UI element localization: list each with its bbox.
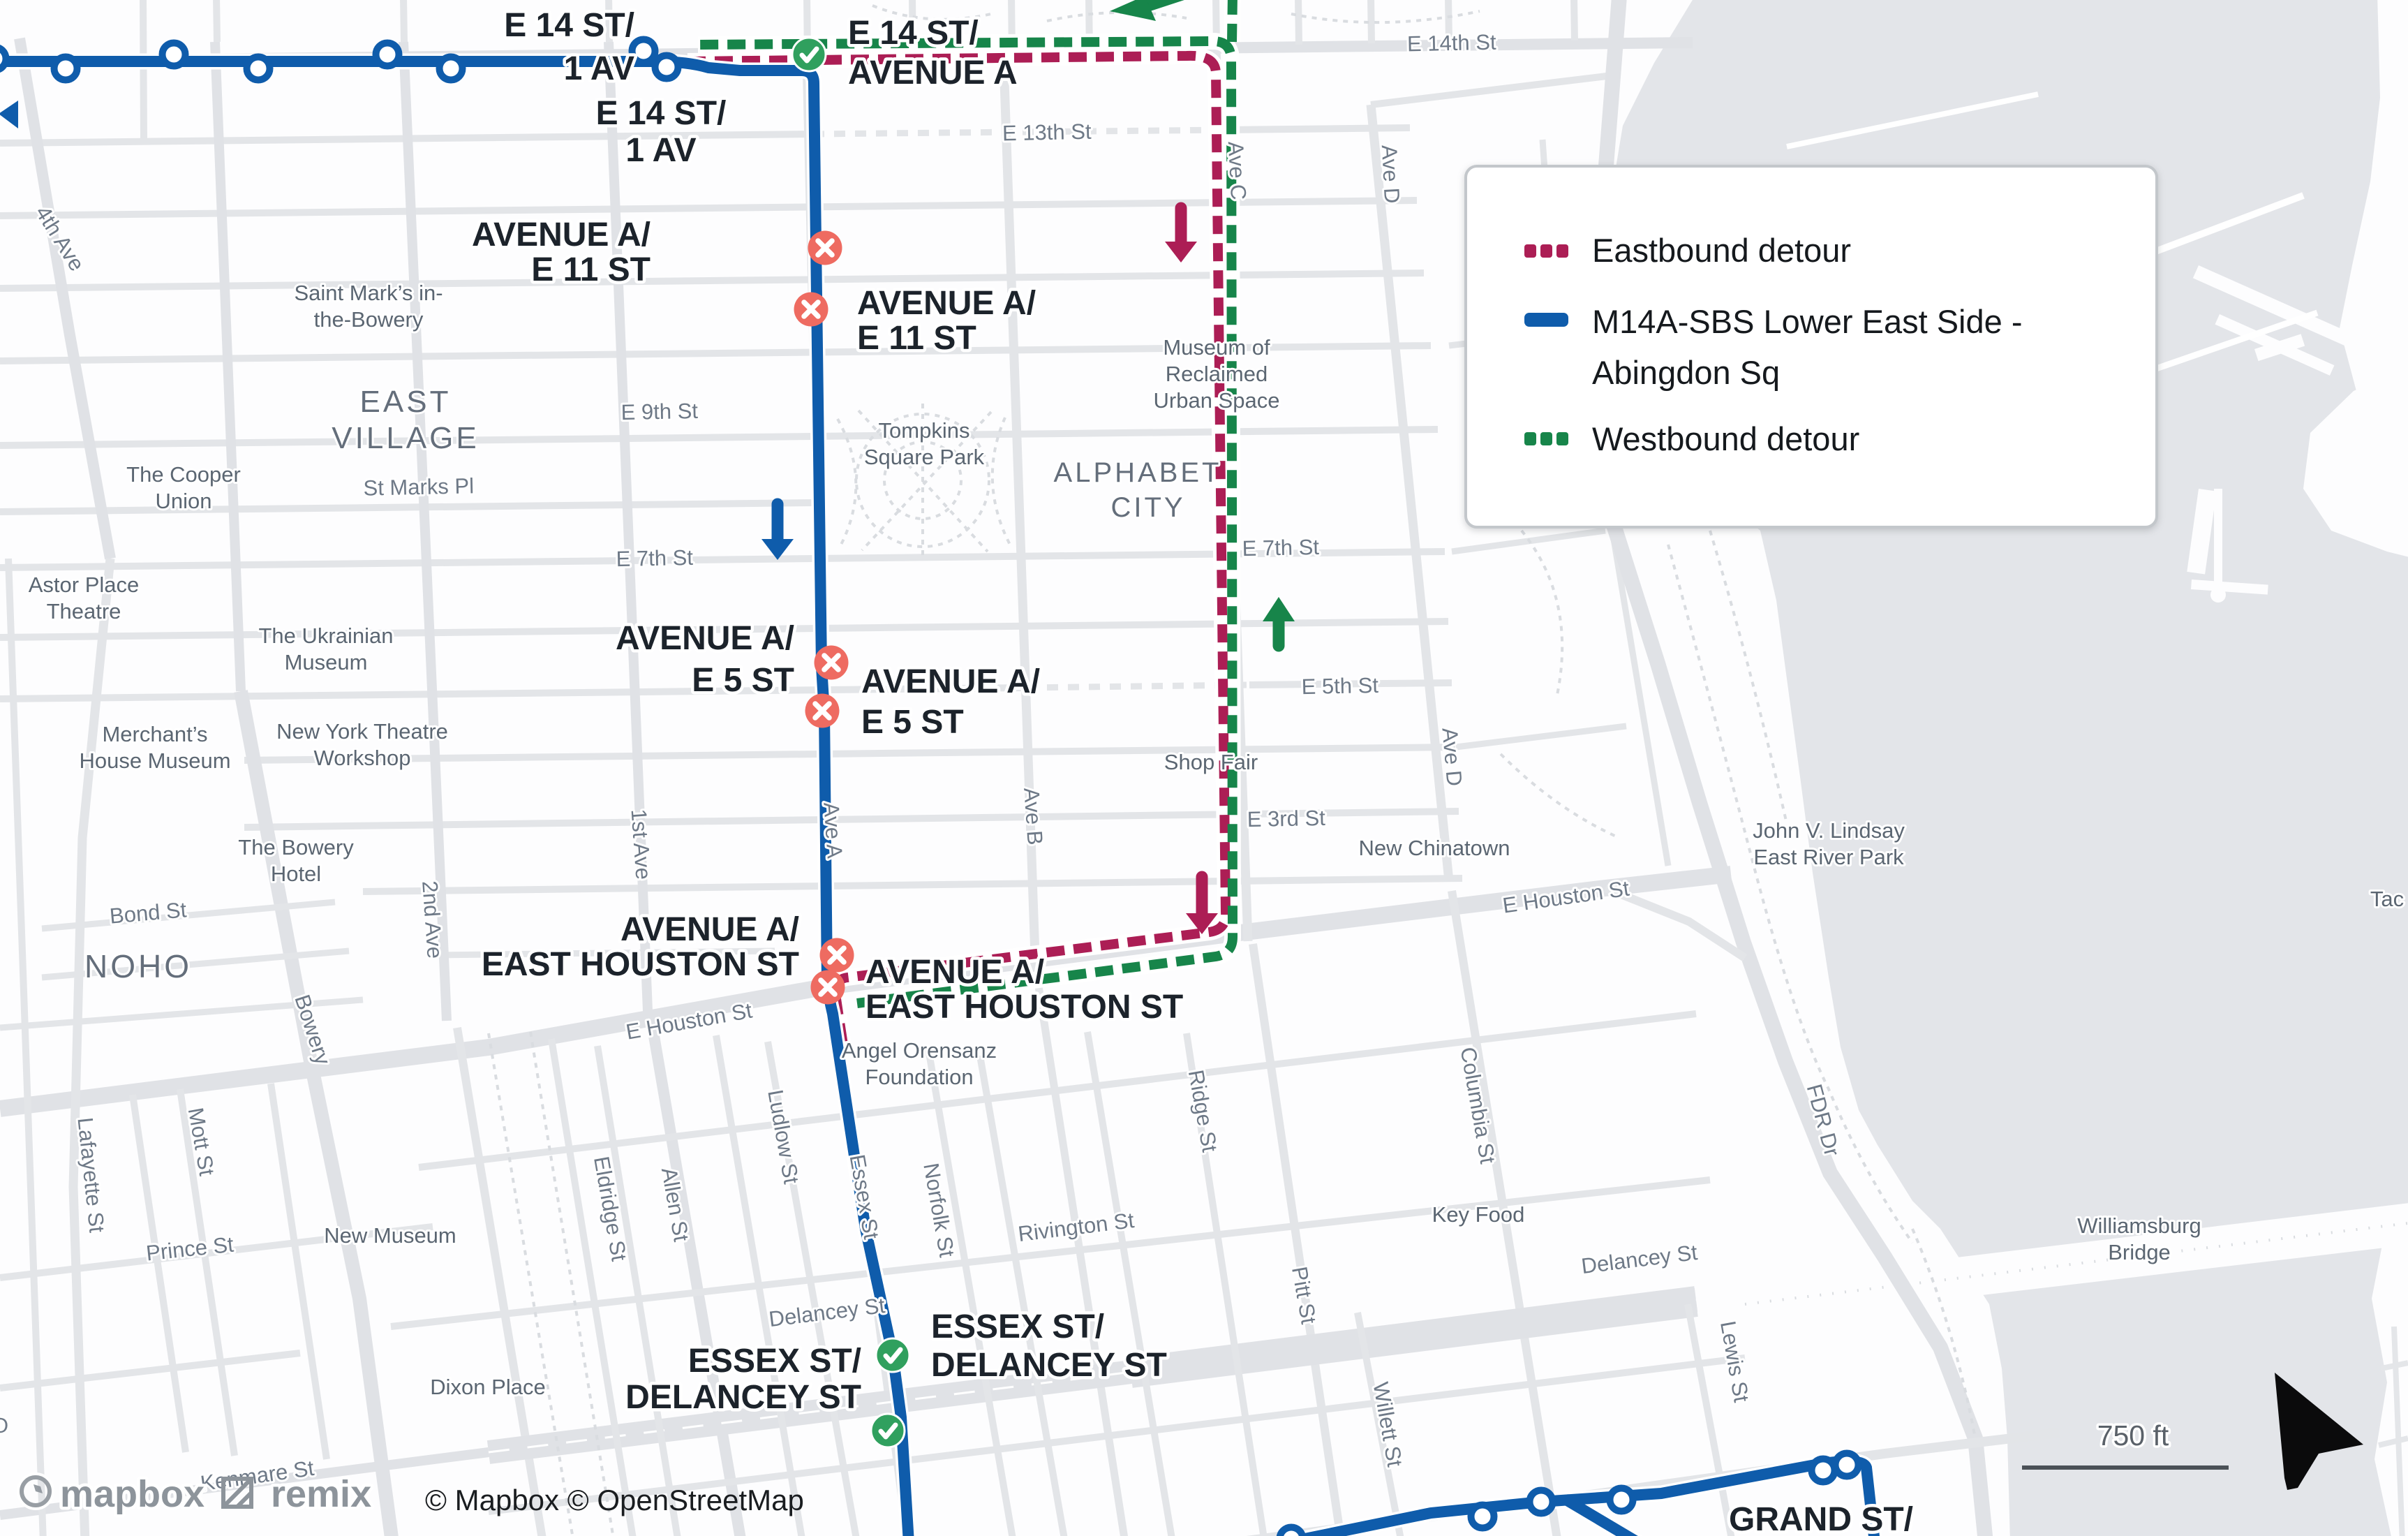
svg-text:John V. Lindsay: John V. Lindsay — [1753, 818, 1905, 843]
svg-text:E 5 ST: E 5 ST — [692, 662, 794, 699]
svg-text:AVENUE A/: AVENUE A/ — [865, 954, 1044, 991]
svg-text:AVENUE A/: AVENUE A/ — [857, 285, 1036, 322]
svg-text:E 14 ST/: E 14 ST/ — [596, 95, 727, 132]
svg-text:Tac: Tac — [2370, 887, 2404, 911]
svg-text:AVENUE A/: AVENUE A/ — [616, 620, 794, 657]
svg-text:Museum: Museum — [285, 650, 368, 674]
svg-text:EAST: EAST — [360, 385, 452, 419]
svg-text:Reclaimed: Reclaimed — [1166, 362, 1268, 386]
svg-text:1 AV: 1 AV — [625, 132, 696, 169]
svg-text:New Museum: New Museum — [324, 1223, 456, 1248]
svg-text:Shop Fair: Shop Fair — [1164, 750, 1258, 774]
svg-text:EAST HOUSTON ST: EAST HOUSTON ST — [482, 946, 799, 983]
svg-text:Ave C: Ave C — [1224, 141, 1251, 201]
svg-text:Workshop: Workshop — [314, 746, 411, 770]
svg-text:1 AV: 1 AV — [564, 50, 634, 87]
svg-text:E 11 ST: E 11 ST — [857, 320, 976, 357]
svg-text:Ave D: Ave D — [1377, 145, 1404, 205]
svg-text:Hotel: Hotel — [271, 862, 321, 886]
svg-text:E 9th St: E 9th St — [620, 399, 698, 424]
svg-text:E 7th St: E 7th St — [616, 545, 693, 571]
svg-text:750 ft: 750 ft — [2097, 1419, 2169, 1452]
svg-text:E 13th St: E 13th St — [1002, 119, 1092, 146]
svg-text:AVENUE A/: AVENUE A/ — [620, 911, 799, 948]
svg-text:AVENUE A/: AVENUE A/ — [861, 663, 1040, 700]
svg-text:CITY: CITY — [1110, 492, 1185, 523]
svg-text:St Marks Pl: St Marks Pl — [363, 473, 474, 500]
svg-text:Merchant’s: Merchant’s — [102, 722, 207, 746]
svg-text:E 7th St: E 7th St — [1242, 535, 1319, 561]
svg-text:Theatre: Theatre — [47, 599, 121, 623]
svg-text:VILLAGE: VILLAGE — [332, 421, 479, 455]
svg-text:AVENUE A/: AVENUE A/ — [472, 216, 651, 253]
svg-text:Urban Space: Urban Space — [1154, 388, 1280, 413]
svg-text:Ave D: Ave D — [1437, 727, 1466, 788]
svg-text:The Bowery: The Bowery — [238, 835, 354, 859]
svg-text:House Museum: House Museum — [79, 748, 230, 773]
svg-text:EAST HOUSTON ST: EAST HOUSTON ST — [865, 989, 1183, 1026]
svg-text:New Chinatown: New Chinatown — [1358, 836, 1510, 860]
svg-text:East River Park: East River Park — [1753, 845, 1904, 869]
svg-text:E 14 ST/: E 14 ST/ — [504, 7, 634, 44]
svg-text:Angel Orensanz: Angel Orensanz — [842, 1038, 997, 1063]
svg-text:Foundation: Foundation — [865, 1065, 973, 1089]
svg-text:E 11 ST: E 11 ST — [531, 251, 651, 288]
svg-text:Williamsburg: Williamsburg — [2077, 1213, 2201, 1238]
svg-text:Eastbound detour: Eastbound detour — [1592, 232, 1851, 269]
svg-text:NOHO: NOHO — [84, 948, 192, 984]
svg-text:1st Ave: 1st Ave — [626, 808, 655, 880]
svg-text:The Cooper: The Cooper — [126, 462, 241, 487]
svg-text:New York Theatre: New York Theatre — [276, 719, 448, 744]
svg-text:E 14th St: E 14th St — [1407, 30, 1497, 57]
svg-text:ALPHABET: ALPHABET — [1054, 457, 1222, 488]
svg-text:remix: remix — [271, 1473, 371, 1515]
svg-text:Astor Place: Astor Place — [29, 573, 140, 597]
svg-text:M14A-SBS Lower East Side -: M14A-SBS Lower East Side - — [1592, 303, 2023, 340]
svg-text:Westbound detour: Westbound detour — [1592, 420, 1859, 457]
svg-text:E 3rd St: E 3rd St — [1247, 806, 1325, 832]
svg-text:Tompkins: Tompkins — [879, 418, 970, 443]
svg-text:DELANCEY ST: DELANCEY ST — [931, 1347, 1167, 1384]
svg-text:O: O — [0, 1413, 8, 1438]
svg-text:mapbox: mapbox — [60, 1473, 205, 1515]
svg-text:Square Park: Square Park — [864, 445, 985, 469]
svg-text:© Mapbox © OpenStreetMap: © Mapbox © OpenStreetMap — [425, 1484, 804, 1516]
svg-text:the-Bowery: the-Bowery — [314, 307, 424, 332]
svg-text:Abingdon Sq: Abingdon Sq — [1592, 354, 1780, 391]
svg-text:ESSEX ST/: ESSEX ST/ — [688, 1343, 861, 1380]
svg-text:Dixon Place: Dixon Place — [430, 1375, 545, 1399]
svg-text:Union: Union — [156, 489, 212, 513]
svg-text:Ave B: Ave B — [1019, 787, 1048, 845]
svg-text:Saint Mark’s in-: Saint Mark’s in- — [294, 281, 443, 305]
svg-text:GRAND ST/: GRAND ST/ — [1729, 1501, 1913, 1536]
svg-text:E 5th St: E 5th St — [1301, 673, 1378, 699]
svg-text:Museum of: Museum of — [1163, 335, 1270, 360]
svg-text:E 5 ST: E 5 ST — [861, 704, 964, 741]
svg-text:Bridge: Bridge — [2108, 1240, 2171, 1264]
svg-text:DELANCEY ST: DELANCEY ST — [625, 1379, 861, 1416]
svg-text:Key Food: Key Food — [1432, 1202, 1525, 1227]
svg-text:AVENUE A: AVENUE A — [848, 54, 1018, 91]
svg-text:E 14 ST/: E 14 ST/ — [848, 15, 979, 52]
svg-text:ESSEX ST/: ESSEX ST/ — [931, 1308, 1104, 1345]
svg-text:The Ukrainian: The Ukrainian — [259, 623, 394, 648]
svg-text:Ave A: Ave A — [819, 802, 847, 859]
